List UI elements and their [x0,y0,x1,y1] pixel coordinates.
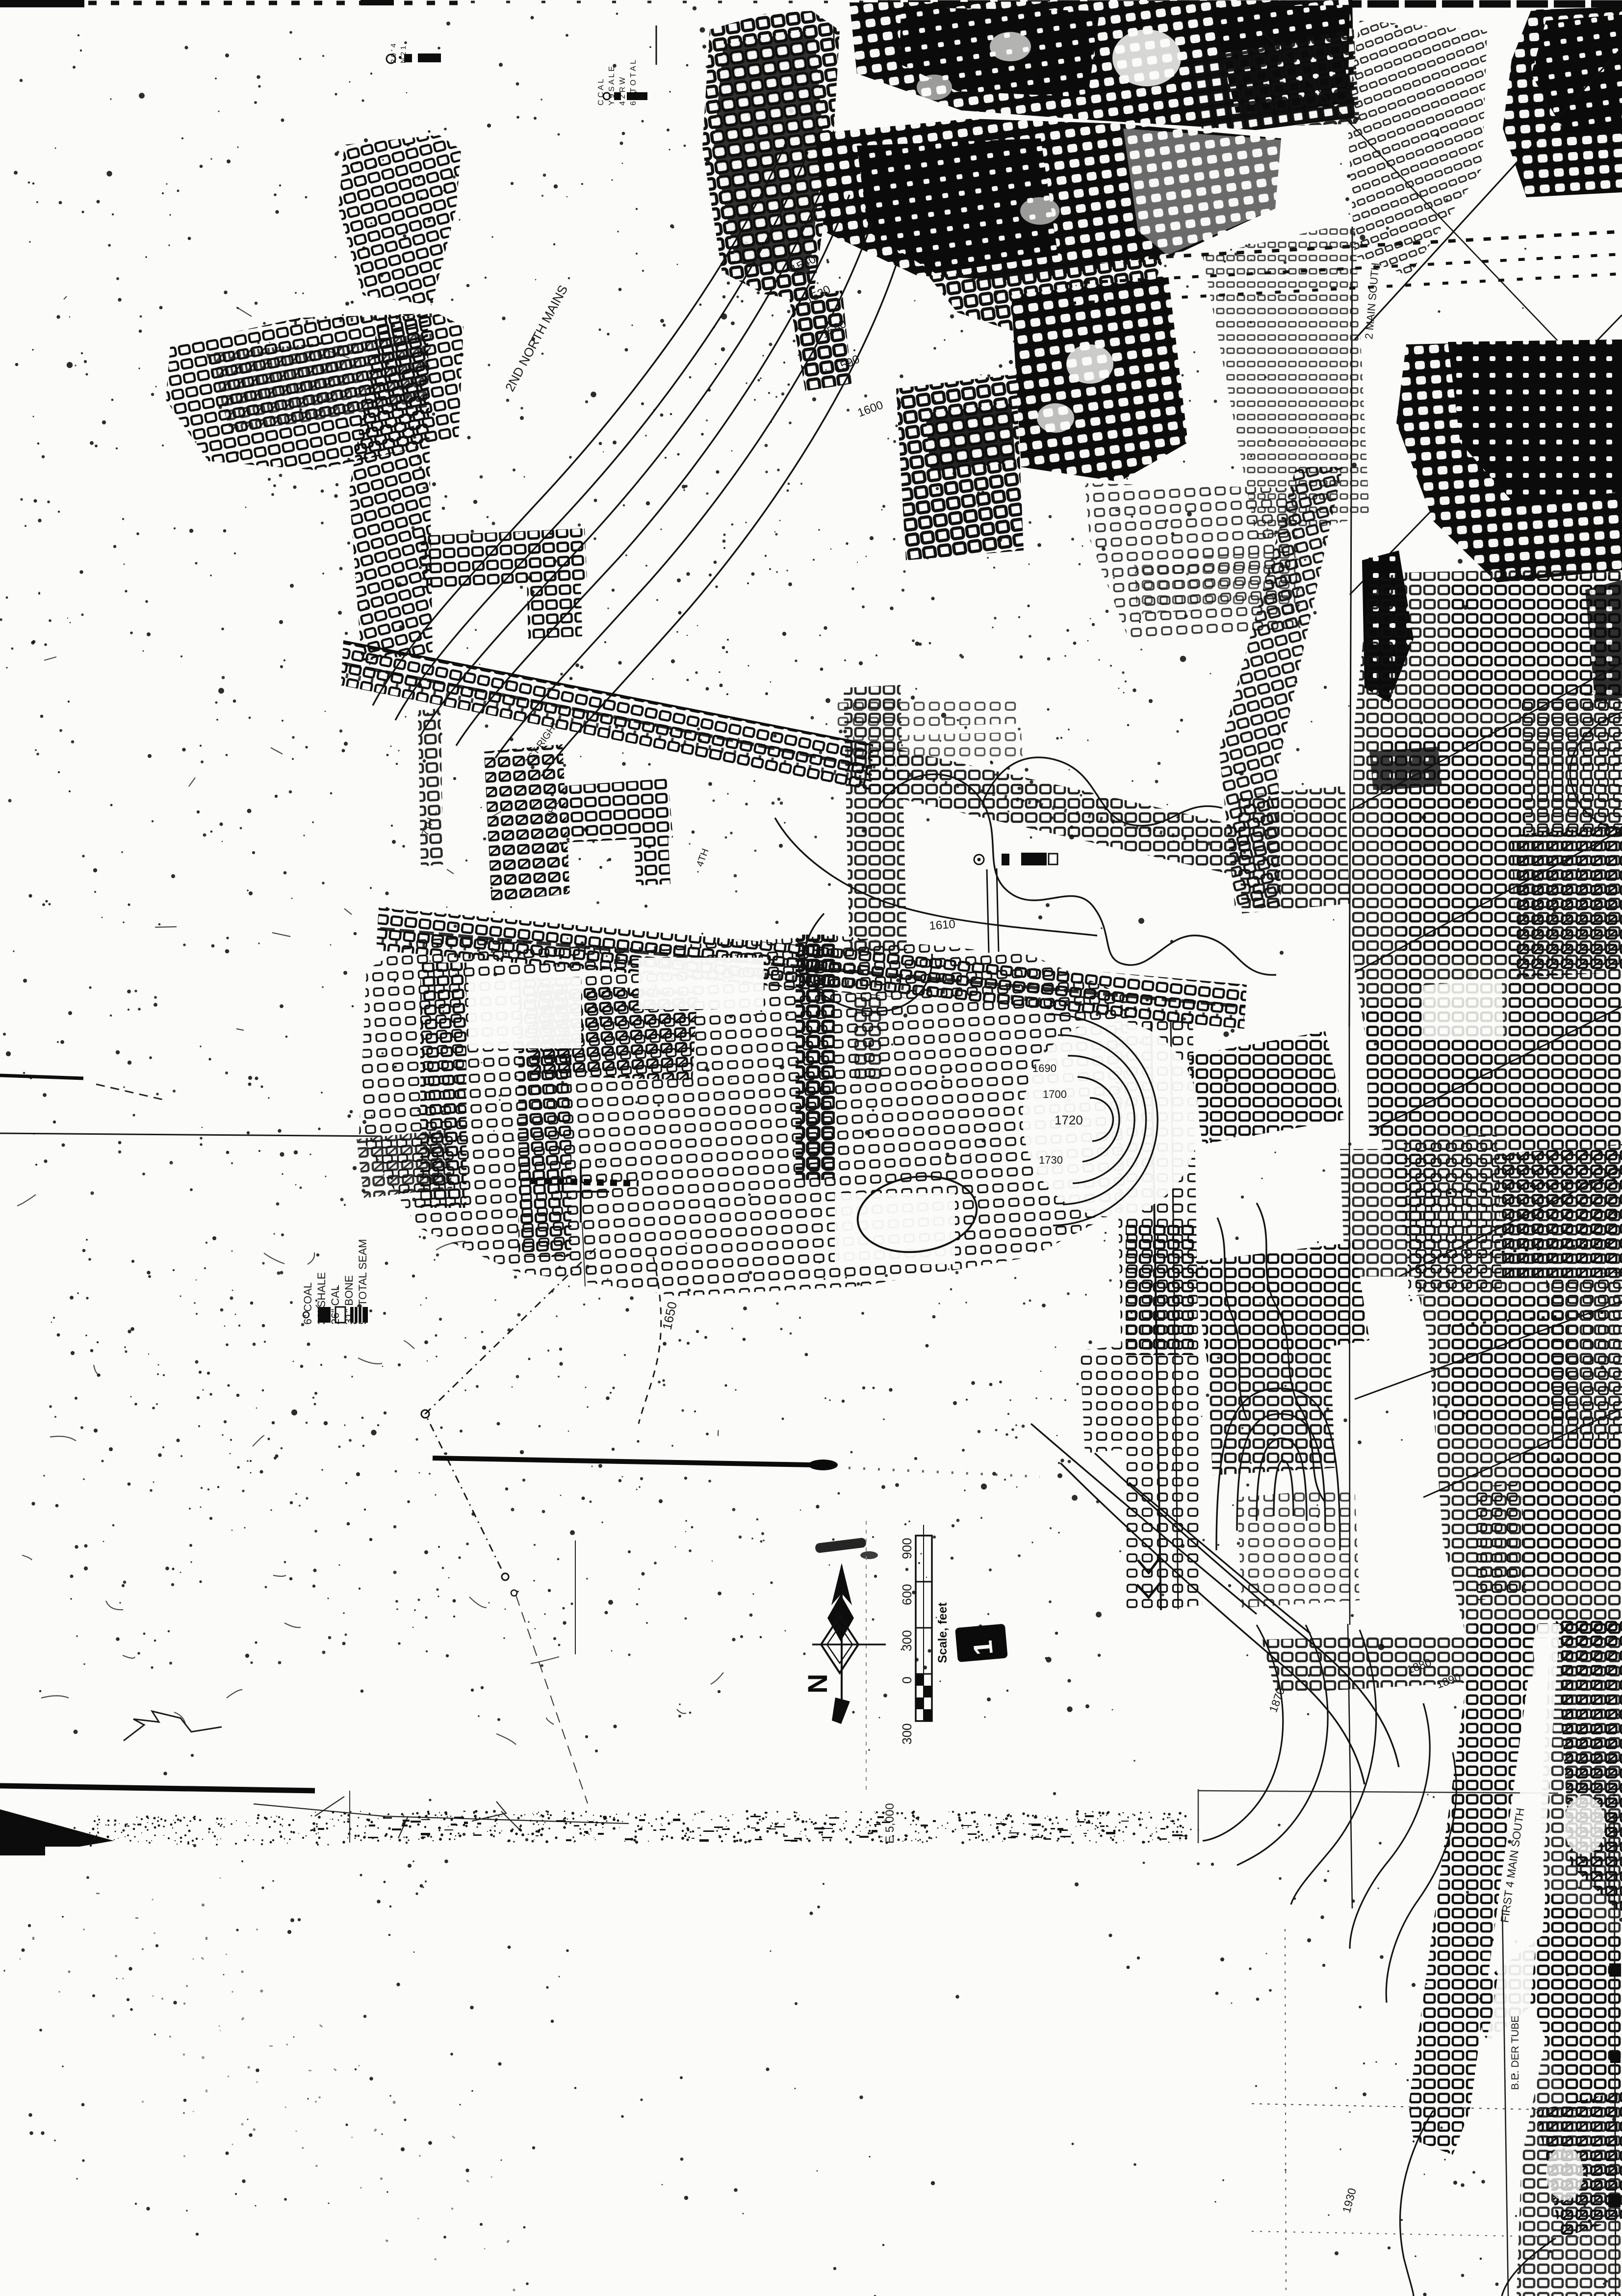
svg-text:1690: 1690 [1032,1062,1056,1074]
svg-text:C C A L: C C A L [597,79,605,105]
svg-text:E 5,000: E 5,000 [883,1803,897,1844]
svg-text:1700: 1700 [1043,1088,1067,1100]
svg-text:2 0 ' 4: 2 0 ' 4 [389,44,398,63]
svg-text:1610: 1610 [929,917,956,933]
svg-text:N: N [802,1674,833,1694]
svg-text:6" COAL: 6" COAL [302,1282,314,1325]
svg-text:1720: 1720 [1055,1113,1083,1127]
svg-text:4 2 R W: 4 2 R W [618,77,627,105]
svg-text:300: 300 [900,1630,914,1651]
svg-text:0: 0 [900,1677,914,1684]
svg-text:600: 600 [900,1584,914,1605]
svg-text:300: 300 [900,1723,914,1745]
svg-text:Scale, feet: Scale, feet [936,1602,950,1663]
svg-text:1730: 1730 [1039,1154,1063,1166]
svg-text:1: 1 [968,1639,999,1656]
svg-text:B.E. DER TUBE: B.E. DER TUBE [1510,2016,1521,2090]
svg-text:900: 900 [900,1538,914,1559]
